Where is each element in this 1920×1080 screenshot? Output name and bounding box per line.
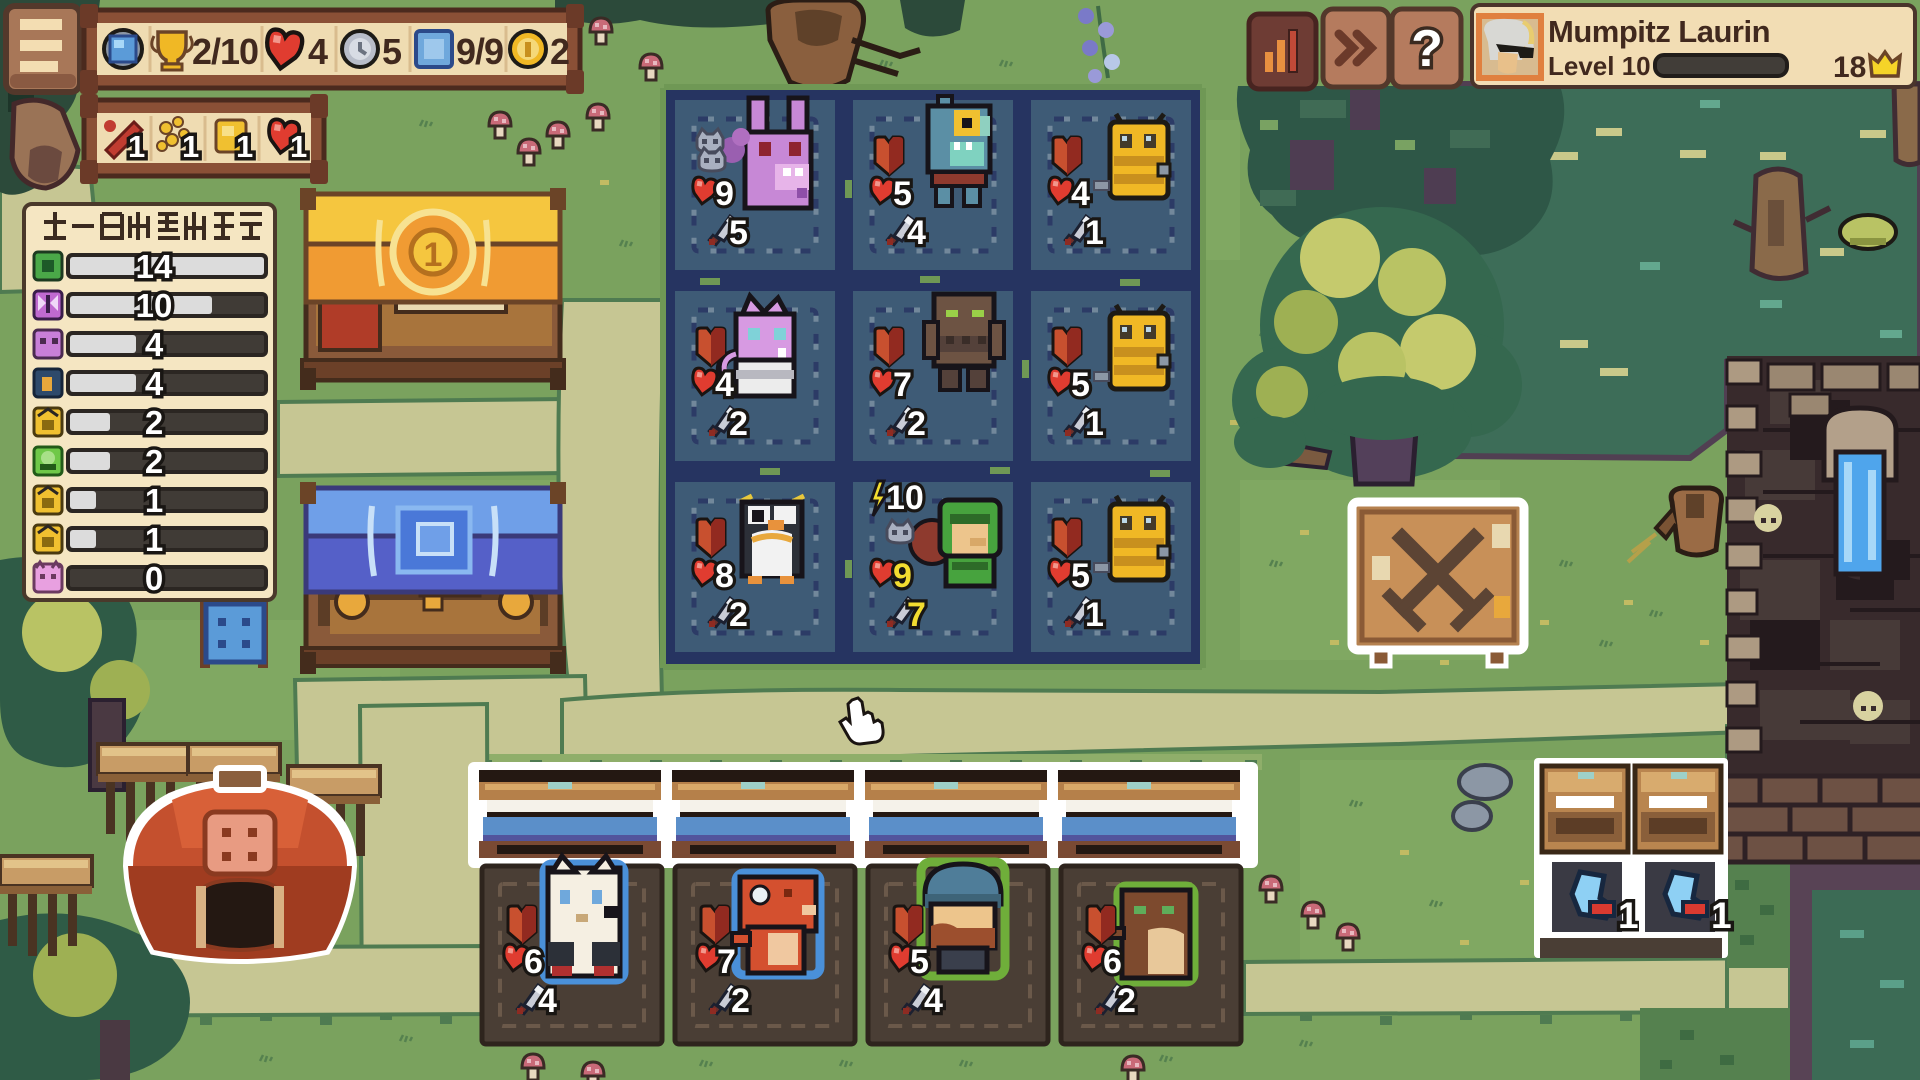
- svg-text:18: 18: [1833, 51, 1866, 84]
- svg-text:6: 6: [1103, 943, 1122, 981]
- svg-text:1: 1: [145, 521, 163, 558]
- svg-text:2: 2: [145, 443, 163, 480]
- svg-text:8: 8: [715, 557, 734, 595]
- svg-text:5: 5: [910, 943, 929, 981]
- svg-text:7: 7: [717, 943, 736, 981]
- svg-text:2: 2: [145, 404, 163, 441]
- svg-text:1: 1: [1085, 214, 1104, 252]
- svg-text:7: 7: [893, 366, 912, 404]
- svg-text:10: 10: [136, 287, 173, 324]
- svg-text:2/10: 2/10: [192, 31, 258, 72]
- svg-text:1: 1: [1085, 596, 1104, 634]
- svg-text:2: 2: [550, 31, 569, 72]
- svg-text:14: 14: [136, 248, 173, 285]
- svg-text:4: 4: [538, 982, 557, 1020]
- svg-text:2: 2: [1117, 982, 1136, 1020]
- svg-text:1: 1: [145, 482, 163, 519]
- svg-text:1: 1: [290, 129, 307, 164]
- svg-text:5: 5: [1071, 557, 1090, 595]
- svg-text:5: 5: [1071, 366, 1090, 404]
- svg-text:4: 4: [308, 31, 328, 72]
- svg-text:Mumpitz Laurin: Mumpitz Laurin: [1548, 14, 1770, 49]
- svg-text:?: ?: [1411, 20, 1443, 78]
- svg-text:4: 4: [1071, 175, 1090, 213]
- svg-text:1: 1: [128, 129, 145, 164]
- svg-text:7: 7: [907, 596, 926, 634]
- svg-text:4: 4: [145, 326, 164, 363]
- svg-text:9/9: 9/9: [456, 31, 503, 72]
- svg-text:4: 4: [145, 365, 164, 402]
- svg-text:6: 6: [524, 943, 543, 981]
- svg-text:1: 1: [1085, 405, 1104, 443]
- svg-text:4: 4: [715, 366, 734, 404]
- svg-text:2: 2: [729, 596, 748, 634]
- svg-text:5: 5: [729, 214, 748, 252]
- svg-text:2: 2: [907, 405, 926, 443]
- svg-text:1: 1: [236, 129, 253, 164]
- svg-text:4: 4: [924, 982, 943, 1020]
- svg-text:1: 1: [1618, 895, 1639, 936]
- svg-text:2: 2: [731, 982, 750, 1020]
- svg-text:Level 10: Level 10: [1548, 51, 1651, 81]
- svg-text:4: 4: [907, 214, 926, 252]
- svg-text:0: 0: [145, 560, 163, 597]
- svg-text:9: 9: [715, 175, 734, 213]
- svg-text:1: 1: [182, 129, 199, 164]
- svg-text:9: 9: [893, 557, 912, 595]
- svg-text:5: 5: [382, 31, 402, 72]
- svg-text:10: 10: [886, 479, 924, 517]
- svg-text:5: 5: [893, 175, 912, 213]
- svg-text:1: 1: [424, 236, 443, 274]
- svg-text:2: 2: [729, 405, 748, 443]
